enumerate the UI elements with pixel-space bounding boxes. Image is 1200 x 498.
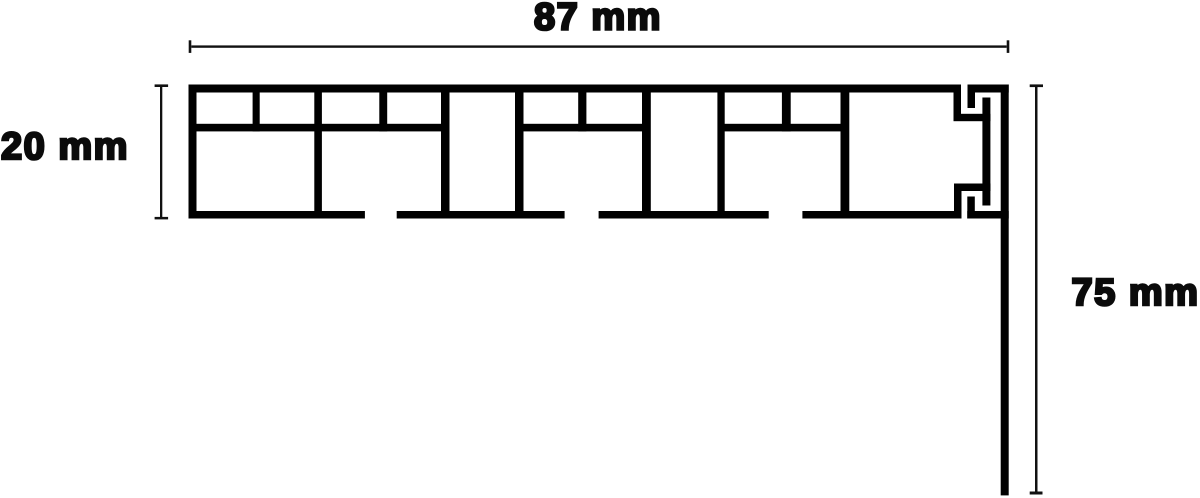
svg-text:75 mm: 75 mm — [1072, 272, 1200, 314]
svg-text:20 mm: 20 mm — [1, 126, 129, 168]
svg-text:87 mm: 87 mm — [534, 0, 662, 38]
